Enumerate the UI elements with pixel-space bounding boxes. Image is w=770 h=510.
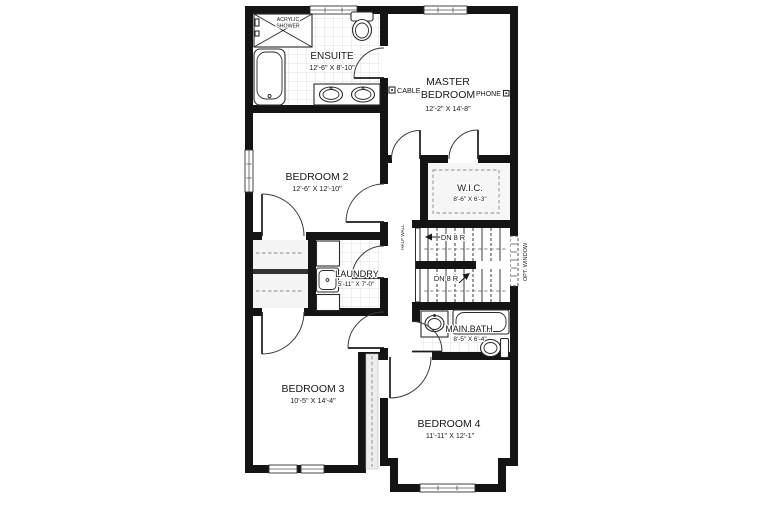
wall-wic-west [420, 163, 428, 228]
door-swing [348, 312, 384, 348]
wall-closet-laundry [308, 240, 316, 316]
bedroom3-label: BEDROOM 3 [281, 383, 344, 395]
cable-label: CABLE [397, 86, 421, 95]
master-bedroom-door [392, 130, 421, 159]
opt-window-label: OPT. WINDOW [523, 242, 529, 281]
main-bath-label: MAIN BATH [445, 324, 492, 334]
closet-bedroom2-door [262, 194, 304, 236]
closet-bedroom2-floor [253, 240, 308, 269]
main-bath-dims: 8'-5" X 6'-4" [453, 336, 486, 343]
wall-bedroom4-west [380, 398, 388, 464]
washer-icon [317, 295, 340, 311]
wall-wic-south [412, 220, 510, 228]
wic-door [449, 130, 478, 159]
ensuite-label: ENSUITE [310, 51, 354, 62]
wall-bedroom3-top-a [245, 308, 262, 316]
ensuite-dims: 12'-6" X 8'-10" [309, 63, 355, 72]
master-bedroom-label-1: MASTER [426, 76, 470, 88]
master-bedroom-dims: 12'-2" X 14'-8" [425, 104, 471, 113]
wall-master-south-b [420, 155, 448, 163]
wall-ensuite-master-a [380, 6, 388, 46]
laundry-dims: 5'-11" X 7'-0" [338, 281, 374, 288]
bedroom4-label: BEDROOM 4 [417, 418, 480, 430]
bedroom4-dims: 11'-11" X 12'-1" [426, 431, 475, 440]
bathtub-icon [254, 49, 285, 105]
wall-bed4-notch-right-v [498, 458, 506, 492]
wic-dims: 8'-6" X 6'-3" [453, 196, 486, 203]
wall-ensuite-bedroom2 [245, 105, 388, 113]
wall-bedroom3-east [358, 352, 366, 473]
wall-bedroom2-east-a [380, 113, 388, 184]
window-master-top [424, 6, 467, 14]
shower-head [255, 19, 259, 26]
wall-closet-divider [253, 269, 308, 274]
window-bedroom4 [420, 484, 475, 492]
window-optional [510, 236, 518, 286]
tub-outer [254, 49, 285, 105]
wall-laundry-east-b [380, 278, 388, 312]
acrylic-shower-label-1: ACRYLIC [277, 17, 300, 23]
half-wall-label: HALF WALL [400, 224, 405, 250]
wall-closet-top-a [245, 232, 262, 240]
stair-landing-rail [416, 261, 476, 269]
wall-laundry-east-a [380, 240, 388, 246]
stairs-down-lower-label: DN 8 R [434, 274, 458, 283]
window-frame [510, 236, 518, 286]
bath-toilet-tank [501, 339, 509, 358]
door-swing [346, 184, 384, 222]
closet-bedroom3-door [262, 312, 304, 354]
toilet-icon [351, 12, 373, 41]
bedroom3-door [348, 312, 384, 348]
door-swing [392, 131, 421, 160]
wall-master-south-c [478, 155, 518, 163]
wall-stairs-bath [412, 302, 510, 310]
master-bedroom-label-2: BEDROOM [421, 89, 475, 101]
cable-outlet-dot [391, 89, 393, 91]
bedroom2-door [346, 184, 384, 222]
wic-label: W.I.C. [457, 183, 483, 194]
stairs-down-upper-label: DN 8 R [441, 233, 465, 242]
door-swing [449, 130, 478, 159]
window-bedroom3-b [301, 465, 324, 473]
door-swing [390, 357, 431, 398]
door-swing [262, 312, 304, 354]
door-swing [262, 194, 304, 236]
window-ensuite-top [310, 6, 357, 14]
shower-valve [255, 31, 259, 36]
bedroom2-dims: 12'-6" X 12'-10" [292, 184, 342, 193]
phone-label: PHONE [476, 91, 501, 98]
laundry-label: LAUNDRY [335, 269, 379, 279]
wall-closet-top-b [306, 232, 388, 240]
floor-plan: ACRYLIC SHOWER ENSUITE 12'-6" X 8'-10" C… [0, 0, 770, 510]
window-bedroom2-left [245, 150, 253, 192]
phone-outlet-dot [505, 92, 507, 94]
wall-bath-west-stub [412, 310, 420, 322]
floor-plan-canvas: ACRYLIC SHOWER ENSUITE 12'-6" X 8'-10" C… [0, 0, 770, 510]
window-bedroom3-a [269, 465, 297, 473]
acrylic-shower-label-2: SHOWER [276, 24, 300, 30]
bedroom2-label: BEDROOM 2 [285, 171, 348, 183]
wall-master-south-a [380, 155, 392, 163]
double-vanity-icon [314, 84, 380, 105]
dryer-icon [317, 241, 340, 266]
bedroom3-dims: 10'-5" X 14'-4" [290, 396, 336, 405]
bedroom4-door [390, 357, 431, 398]
